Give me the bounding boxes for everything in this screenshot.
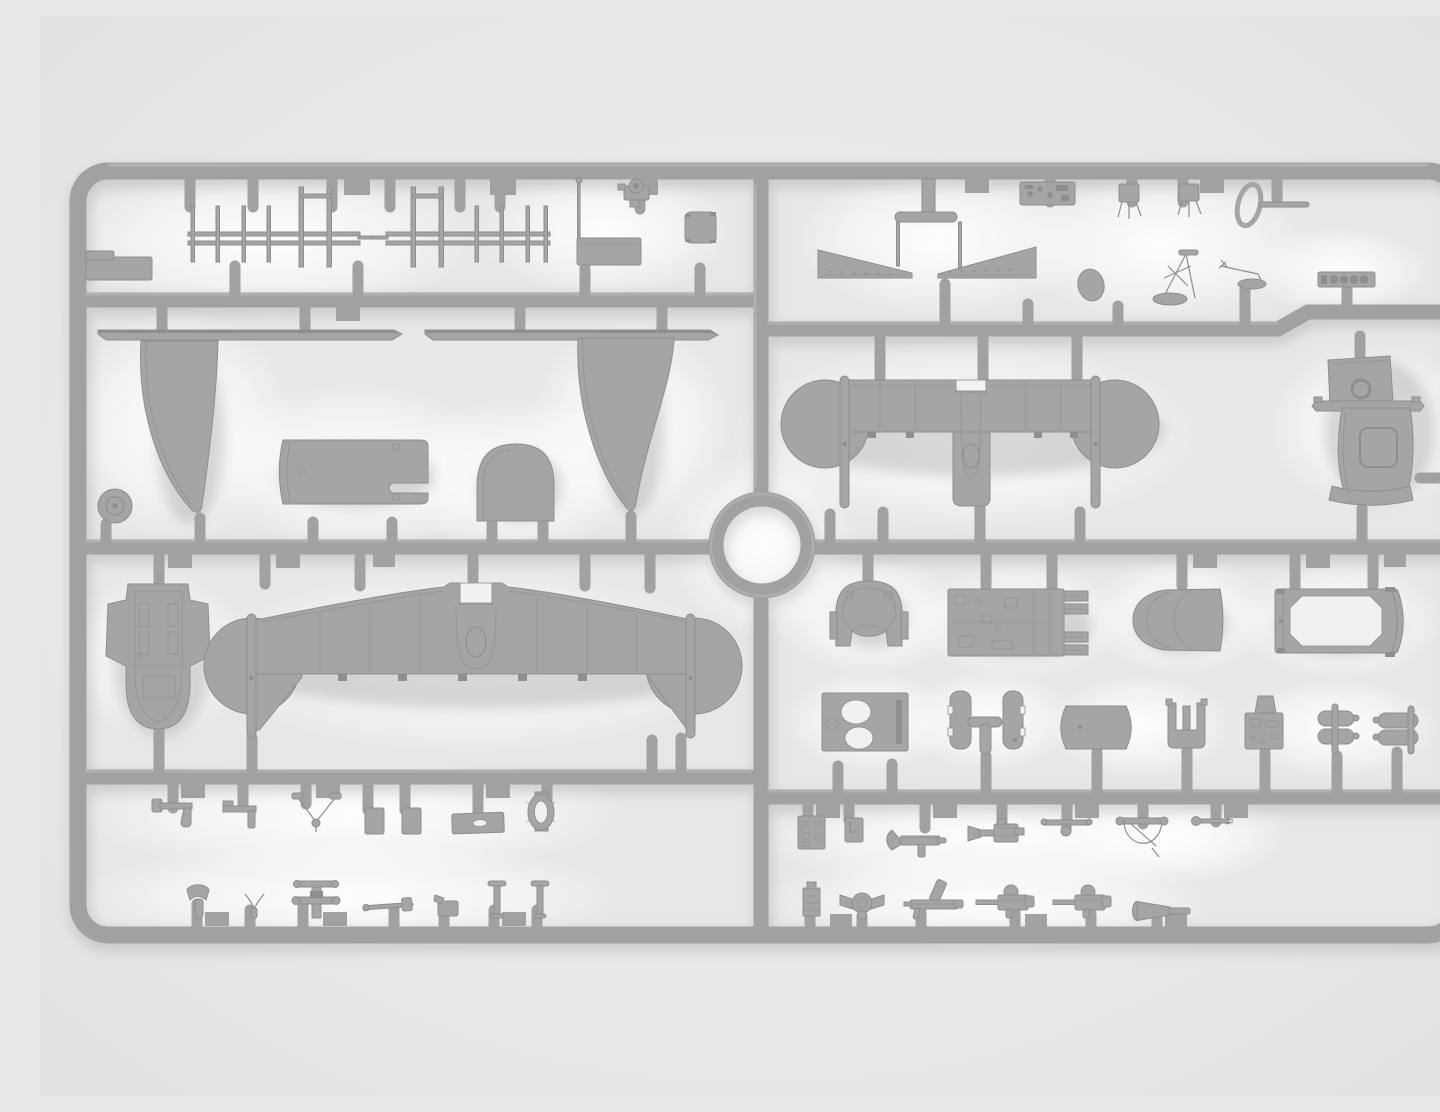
part-panel-square	[845, 818, 863, 842]
part-instrument-panel-square	[798, 816, 825, 849]
part-bulkhead-box	[822, 693, 908, 751]
part-leading-edge-strip-left	[98, 330, 402, 340]
part-cowl-wrap	[279, 440, 428, 504]
sprue-illustration: Gray injection-molded plastic model airc…	[40, 16, 1440, 1096]
part-nose-cone	[1133, 589, 1223, 651]
part-wheel	[98, 489, 132, 523]
part-panel-plate	[452, 812, 505, 834]
part-fuselage-panel-window	[1329, 408, 1413, 505]
part-fuselage-panel-porthole	[1328, 356, 1393, 405]
part-square-pad	[685, 212, 716, 243]
part-hatch-frame	[1275, 587, 1403, 657]
part-u-bracket	[1166, 699, 1207, 748]
sprue-photo: Gray injection-molded plastic model airc…	[40, 16, 1440, 1096]
part-headrest-cowl	[830, 581, 908, 646]
part-plate-1	[365, 808, 384, 834]
part-gauge-strip	[1318, 272, 1375, 287]
part-cowl-panel	[1061, 706, 1132, 749]
part-instrument-panel	[1020, 182, 1075, 205]
part-plate-2	[402, 808, 421, 834]
part-canopy-dome	[477, 444, 554, 521]
